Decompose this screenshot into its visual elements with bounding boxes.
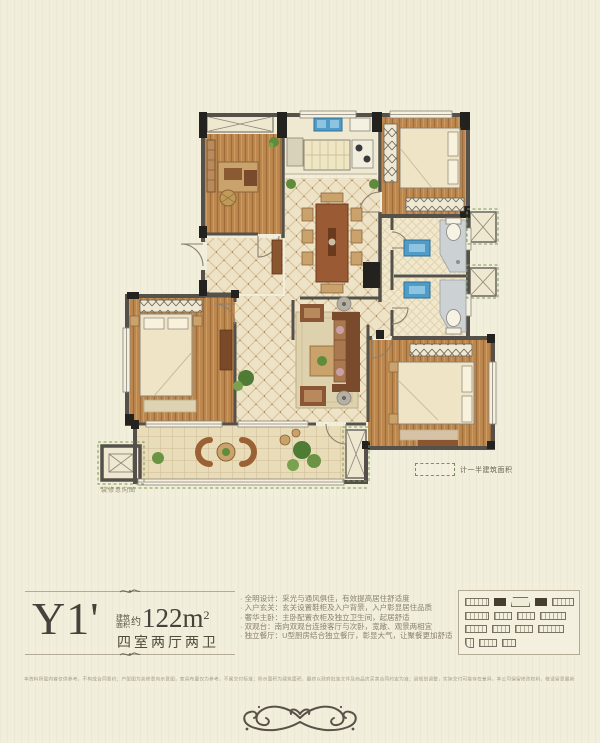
wardrobe <box>406 198 464 211</box>
balcony-floor <box>135 426 346 482</box>
half-area-legend-swatch <box>415 463 455 476</box>
area-label-bottom: 面积 <box>116 622 130 629</box>
keymap-building-highlighted <box>535 598 547 606</box>
keymap-building <box>511 597 531 607</box>
feature-line: 全明设计：采光与通风俱佳，有效提高居住舒适度 <box>240 594 455 603</box>
inner-hall-floor <box>235 296 293 424</box>
keymap-building <box>540 612 566 620</box>
feature-line: 入户玄关：玄关设置鞋柜及入户背景，入户彰显居住品质 <box>240 603 455 612</box>
keymap-row <box>465 638 574 648</box>
wardrobe <box>140 300 202 312</box>
keymap-row <box>465 597 574 607</box>
feature-line: 双观台：南向双观台连接客厅与次卧，宽敞、观景两相宜 <box>240 622 455 631</box>
separator-ornament <box>119 588 141 595</box>
half-area-legend-label: 计一半建筑面积 <box>460 465 513 475</box>
keymap-building <box>465 638 474 648</box>
feature-list: 全明设计：采光与通风俱佳，有效提高居住舒适度入户玄关：玄关设置鞋柜及入户背景，入… <box>240 594 455 640</box>
keymap-row <box>465 612 574 620</box>
corridor-floor <box>205 238 283 294</box>
keymap-building <box>465 598 489 606</box>
model-block: Y1' 建筑 面积 约 122m2 四室两厅两卫 <box>30 596 235 652</box>
area-label: 建筑 面积 <box>116 615 130 629</box>
area-row: 建筑 面积 约 122m2 <box>116 604 210 629</box>
floorplan-drawing <box>88 100 513 500</box>
site-keymap <box>458 590 580 655</box>
feature-line: 奢华主卧：主卧配置衣柜及独立卫生间，起居舒适 <box>240 613 455 622</box>
keymap-building <box>538 625 564 633</box>
area-approx: 约 <box>131 613 141 628</box>
keymap-building <box>479 639 497 647</box>
area-superscript: 2 <box>204 608 210 622</box>
area-value: 122m2 <box>142 604 210 629</box>
floorplan-page: 装修意向图 计一半建筑面积 Y1' 建筑 面积 约 122m2 四室两厅两卫 全 <box>0 0 600 743</box>
keymap-building <box>494 612 512 620</box>
keymap-building <box>517 612 535 620</box>
area-label-top: 建筑 <box>116 615 130 622</box>
layout-line: 四室两厅两卫 <box>117 632 219 652</box>
wardrobe <box>410 344 472 356</box>
keymap-building <box>502 639 516 647</box>
shoe-cabinet <box>272 240 282 274</box>
feature-line: 独立餐厅：U型厨房结合独立餐厅，彰显大气，让聚餐更加舒适 <box>240 631 455 640</box>
flourish-ornament <box>230 700 370 740</box>
keymap-building <box>465 612 489 620</box>
separator-ornament <box>119 651 141 658</box>
keymap-building <box>465 625 487 633</box>
separator-bottom <box>25 651 235 658</box>
decor-note: 装修意向图 <box>101 485 136 494</box>
half-area-legend: 计一半建筑面积 <box>415 463 513 476</box>
keymap-building-highlighted <box>494 598 506 606</box>
bay-window <box>207 116 273 132</box>
keymap-building <box>515 625 533 633</box>
keymap-row <box>465 625 574 633</box>
keymap-building <box>492 625 510 633</box>
keymap-building <box>552 598 574 606</box>
model-name: Y1' <box>32 592 100 645</box>
disclaimer: 本资料所载内容仅供参考，不构成合同要约；户型图为装修意向示意图，家具布置仅为参考… <box>24 676 575 682</box>
